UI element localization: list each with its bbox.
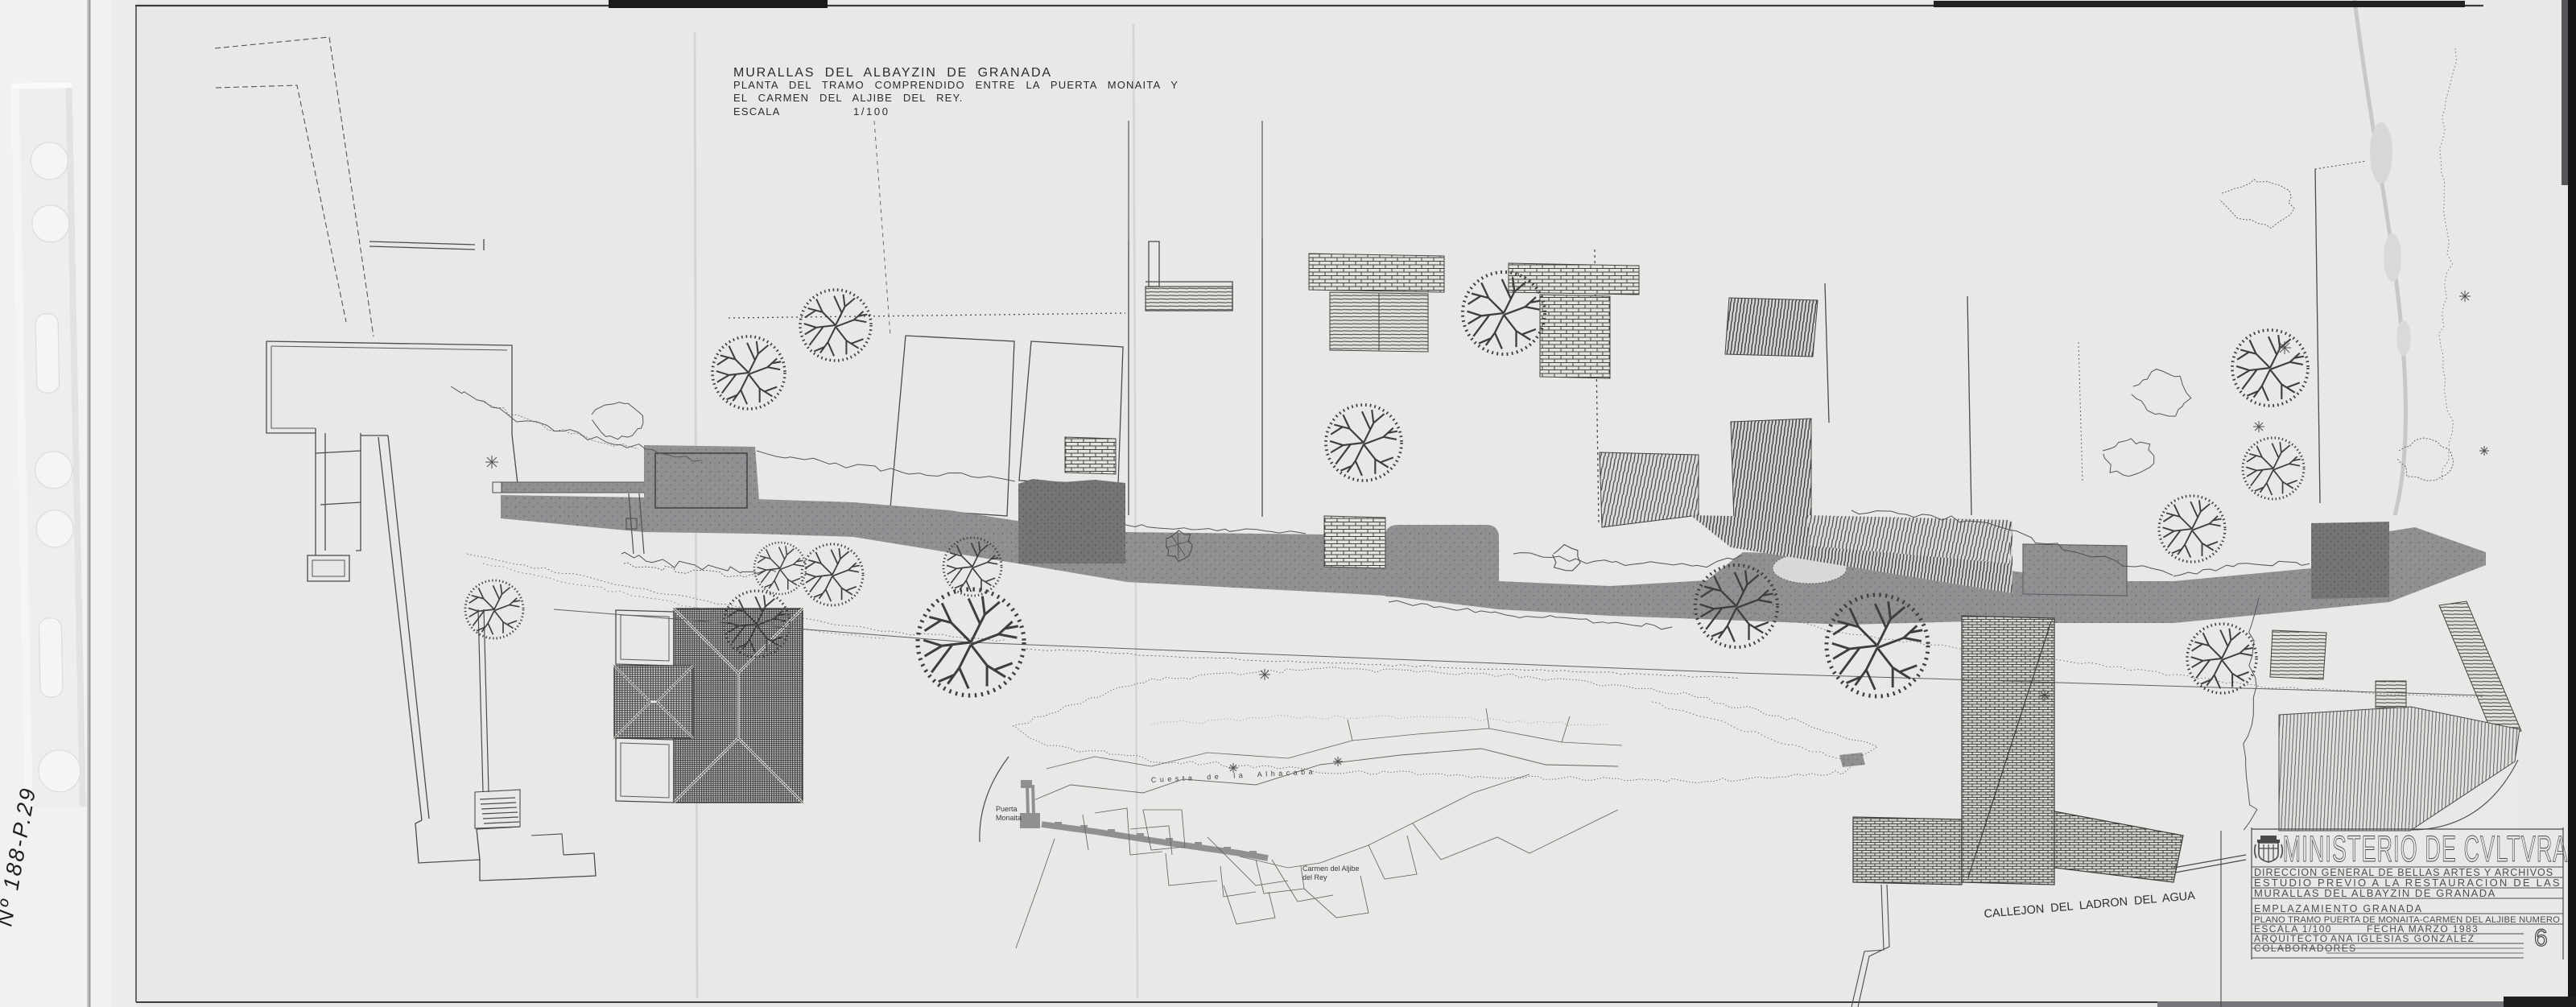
svg-text:ESCALA: ESCALA [733, 105, 781, 118]
svg-text:Monaita: Monaita [996, 814, 1022, 822]
svg-text:PLANTA DEL TRAMO COMPRENDIDO E: PLANTA DEL TRAMO COMPRENDIDO ENTRE LA PU… [733, 79, 1179, 91]
svg-text:del Rey: del Rey [1302, 873, 1327, 881]
svg-text:MURALLAS DEL ALBAYZIN DE GRANA: MURALLAS DEL ALBAYZIN DE GRANADA [2254, 887, 2496, 899]
svg-text:Carmen del Aljibe: Carmen del Aljibe [1302, 865, 1360, 873]
svg-text:EL CARMEN DEL ALJIBE DEL REY.: EL CARMEN DEL ALJIBE DEL REY. [733, 92, 964, 104]
svg-text:Puerta: Puerta [996, 805, 1018, 813]
svg-text:MURALLAS DEL ALBAYZIN DE GRANA: MURALLAS DEL ALBAYZIN DE GRANADA [733, 66, 1052, 80]
svg-text:1/100: 1/100 [853, 105, 890, 118]
svg-text:MINISTERIO DE CVLTVRA: MINISTERIO DE CVLTVRA [2283, 828, 2569, 869]
svg-text:EMPLAZAMIENTO GRANADA: EMPLAZAMIENTO GRANADA [2254, 903, 2423, 914]
svg-text:6: 6 [2534, 925, 2548, 951]
